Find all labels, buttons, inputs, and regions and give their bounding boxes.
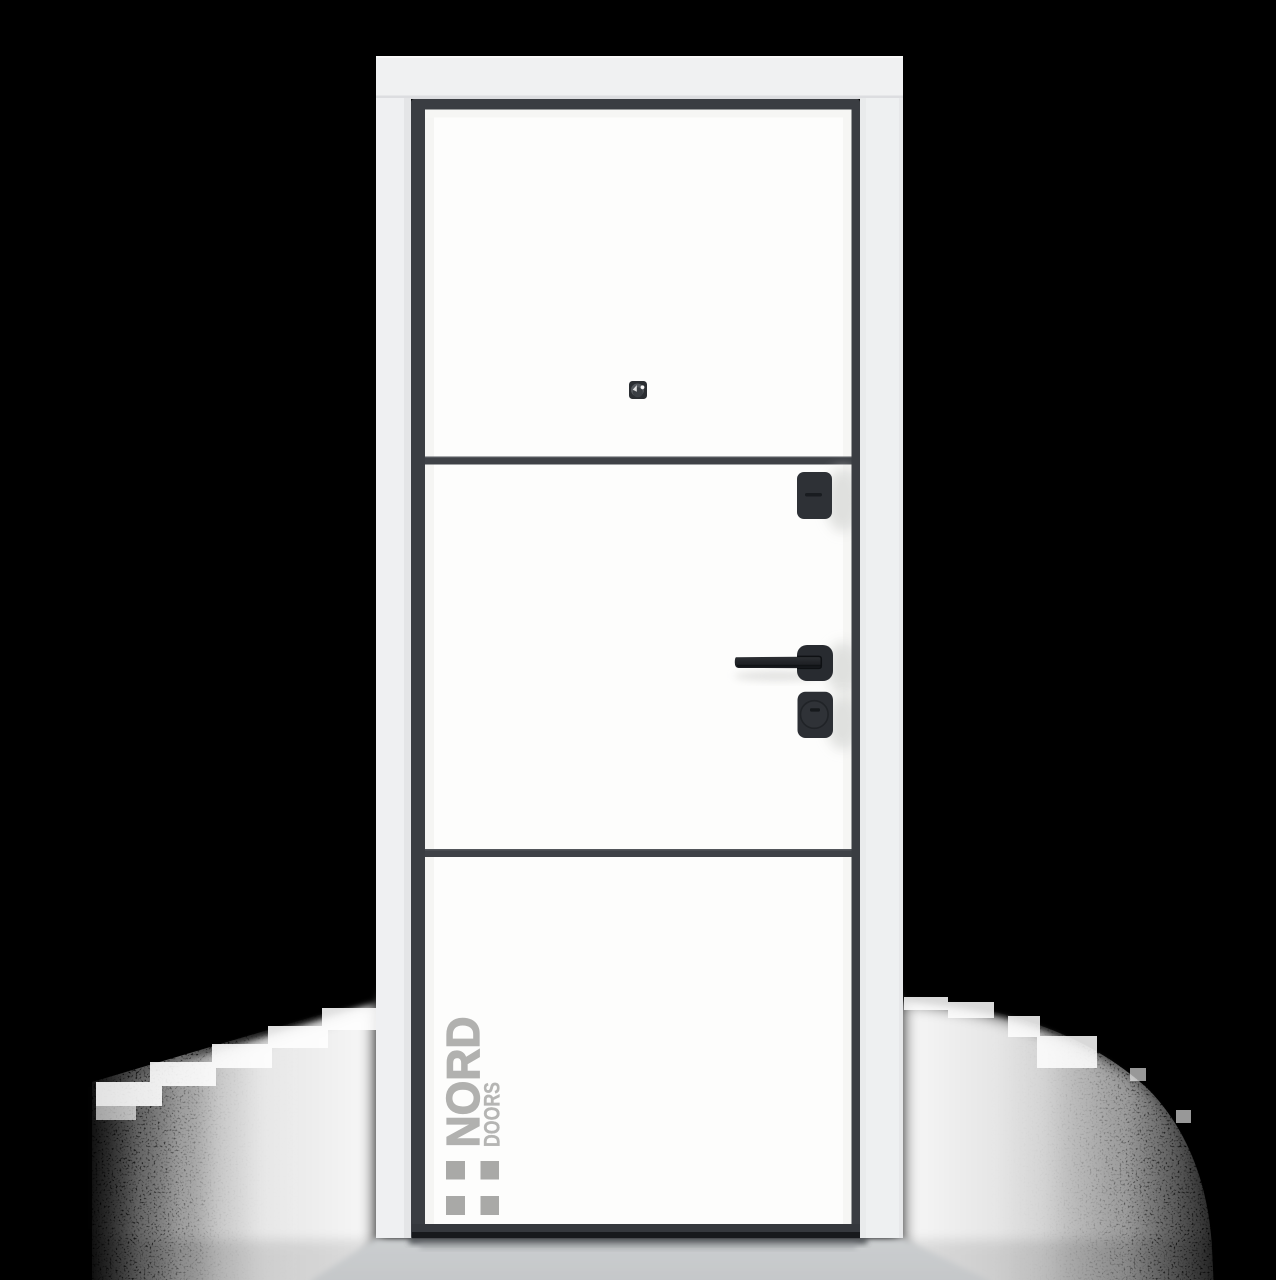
svg-text:DOORS: DOORS [480,1082,505,1147]
